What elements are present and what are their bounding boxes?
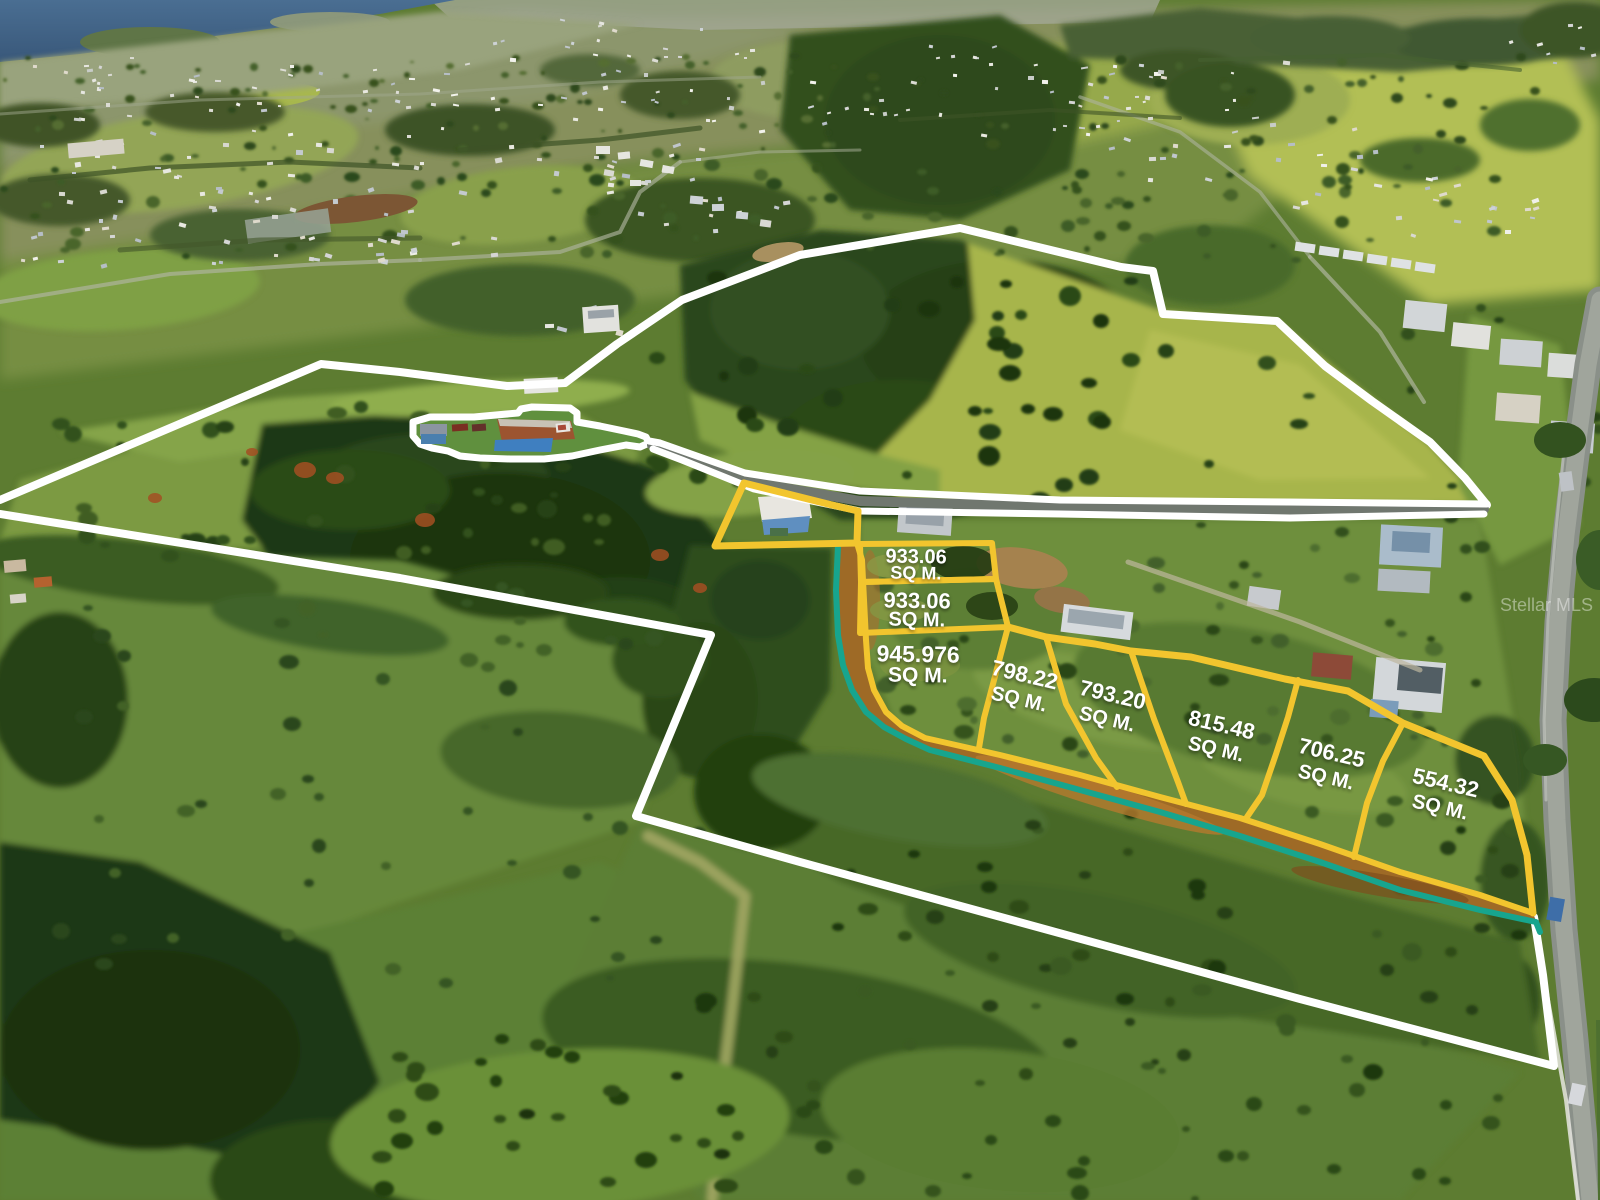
svg-text:Stellar MLS: Stellar MLS (1500, 595, 1593, 615)
svg-text:SQ M.: SQ M. (890, 563, 941, 584)
svg-text:SQ M.: SQ M. (888, 663, 948, 687)
svg-text:SQ M.: SQ M. (888, 609, 945, 632)
